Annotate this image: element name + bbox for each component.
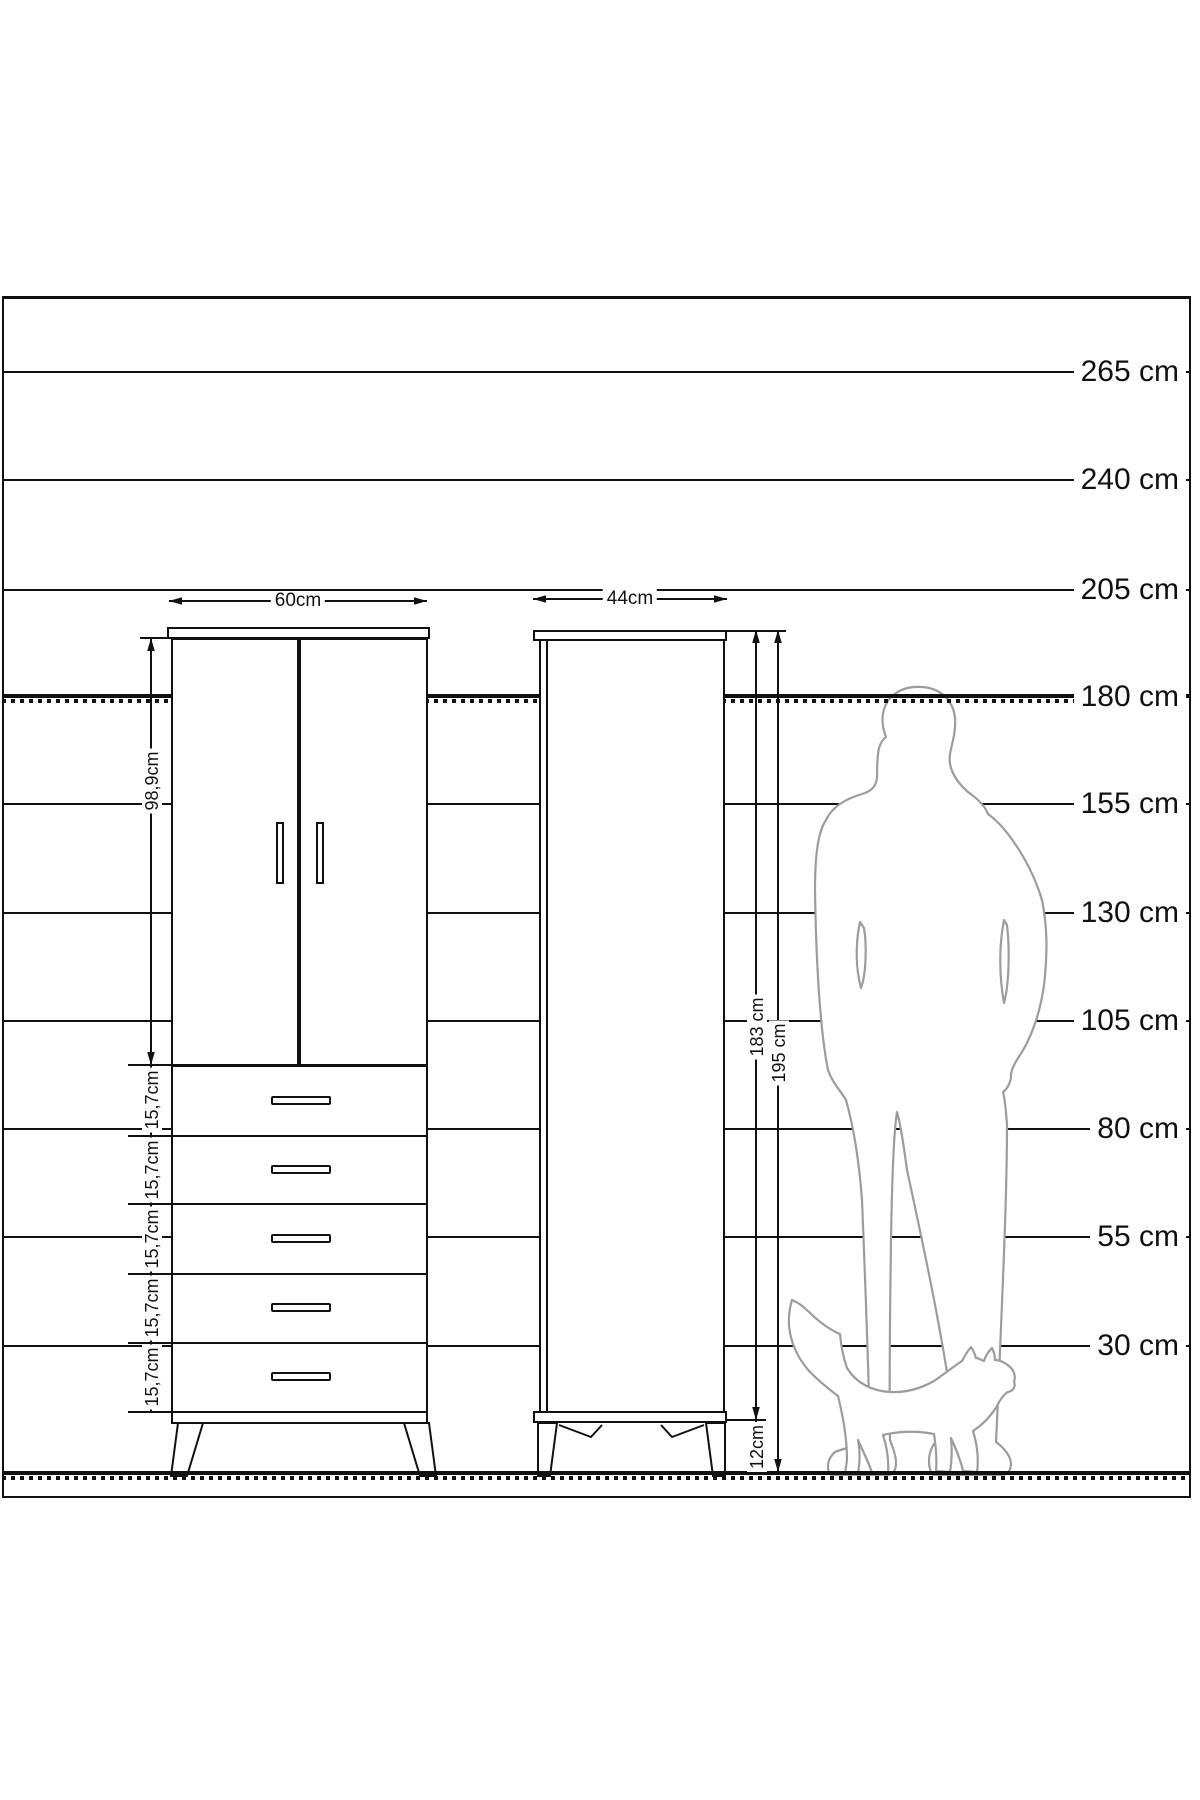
scale-label-240: 240 cm: [1074, 464, 1186, 496]
drawer-height-label-2: 15,7cm: [142, 1137, 162, 1202]
scale-label-265: 265 cm: [1074, 356, 1186, 388]
drawer-height-label-1: 15,7cm: [142, 1067, 162, 1132]
side-cabinet-back-leg: [706, 1423, 725, 1476]
height-scale-diagram: 265 cm 240 cm 205 cm 180 cm 155 cm 130 c…: [0, 0, 1200, 1800]
scale-label-30: 30 cm: [1090, 1330, 1186, 1362]
front-cabinet-right-leg: [404, 1423, 436, 1476]
ground-hatched-line: [2, 1471, 1191, 1481]
scale-label-205: 205 cm: [1074, 574, 1186, 606]
front-cabinet-left-leg: [171, 1423, 203, 1476]
front-width-label: 60cm: [271, 591, 325, 611]
dimensions-layer: [0, 0, 1200, 1800]
drawer-height-label-5: 15,7cm: [142, 1344, 162, 1409]
cabinet-legs: [171, 1423, 725, 1476]
side-front-leg-brace: [559, 1425, 602, 1437]
door-height-label: 98,9cm: [142, 748, 162, 813]
side-cabinet-front-leg: [538, 1423, 557, 1476]
scale-label-180: 180 cm: [1074, 681, 1186, 713]
leg-height-label: 12cm: [747, 1422, 767, 1472]
scale-label-80: 80 cm: [1090, 1113, 1186, 1145]
scale-label-55: 55 cm: [1090, 1221, 1186, 1253]
side-depth-label: 44cm: [603, 589, 657, 609]
drawer-height-label-4: 15,7cm: [142, 1275, 162, 1340]
scale-label-155: 155 cm: [1074, 788, 1186, 820]
body-height-label: 183 cm: [747, 994, 767, 1059]
scale-label-130: 130 cm: [1074, 897, 1186, 929]
side-back-leg-brace: [661, 1425, 704, 1437]
scale-label-105: 105 cm: [1074, 1005, 1186, 1037]
drawer-height-label-3: 15,7cm: [142, 1206, 162, 1271]
dimension-lines: [128, 599, 786, 1472]
total-height-label: 195 cm: [769, 1020, 789, 1085]
